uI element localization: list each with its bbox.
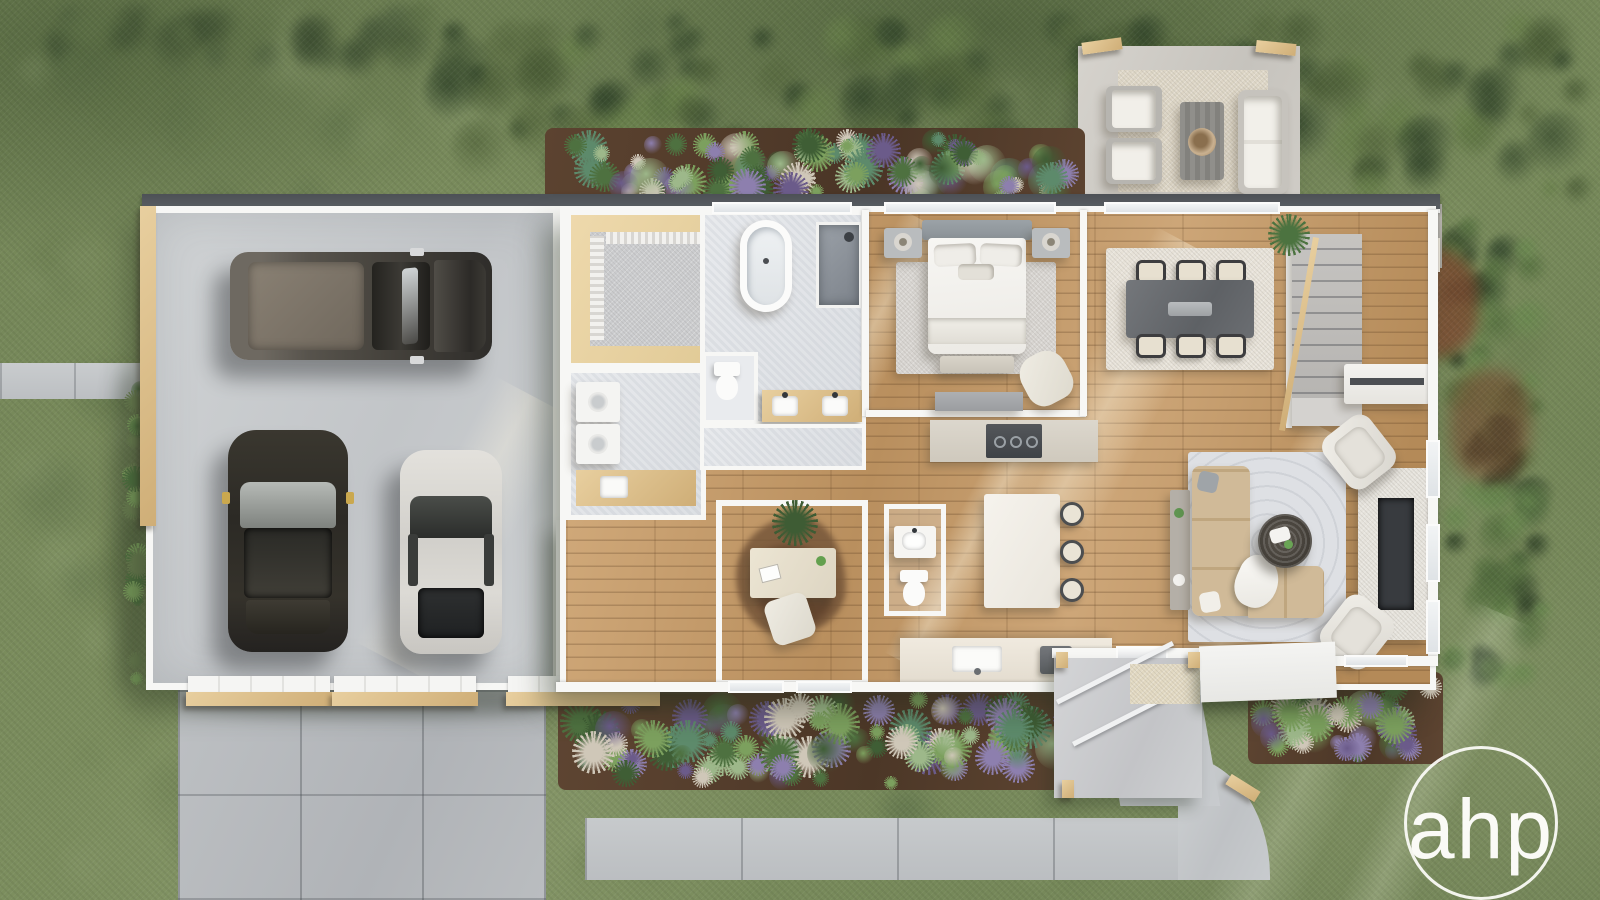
rust-groundcover-2: [1450, 370, 1530, 480]
dining-chair-6: [1216, 334, 1246, 358]
white-car-side-glass-right: [484, 534, 494, 586]
dining-centerpiece: [1168, 302, 1212, 316]
white-car-windshield: [410, 496, 492, 538]
ahp-logo-text: ahp: [1408, 787, 1554, 871]
bed-folded-blanket: [928, 318, 1026, 344]
laundry-sink: [600, 476, 628, 498]
bar-stool-1: [1060, 502, 1084, 526]
laundry-counter: [576, 470, 696, 506]
porch-roof-slab: [1199, 642, 1337, 703]
washer-door: [588, 392, 608, 412]
shower-head: [844, 232, 854, 242]
porch-post-3: [1062, 780, 1074, 798]
closet-carpet: [590, 232, 710, 346]
porch-post-1: [1056, 652, 1068, 668]
bed-bench: [940, 356, 1014, 373]
garage-door-apron-1: [186, 692, 332, 706]
console-decor-plant: [1174, 508, 1184, 518]
vanity-faucet-2: [832, 392, 838, 398]
dark-car-roof-glass: [244, 528, 332, 598]
window-office-front-2: [796, 681, 852, 693]
pickup-truck-windshield-glint: [402, 267, 418, 345]
mud-hall: [700, 424, 866, 470]
wall-bedroom-dining: [1080, 210, 1087, 416]
pickup-truck-mirror-top: [410, 248, 424, 256]
tub-drain: [763, 258, 769, 264]
garage-door-1: [188, 676, 330, 692]
dark-car-mirror-left: [222, 492, 230, 504]
bar-stool-2: [1060, 540, 1084, 564]
pickup-truck-mirror-bottom: [410, 356, 424, 364]
vanity-sink-1: [772, 396, 798, 416]
lamp-left: [894, 233, 912, 251]
window-right-3: [1426, 600, 1440, 654]
ahp-logo: ahp: [1404, 746, 1558, 900]
kitchen-island: [984, 494, 1060, 608]
garage-door-2: [334, 676, 476, 692]
dryer-door: [588, 434, 608, 454]
lamp-right: [1042, 233, 1060, 251]
window-right-1: [1426, 440, 1440, 498]
pickup-truck-bed-cover: [248, 262, 364, 350]
console-decor-tray: [1173, 574, 1185, 586]
white-car-engine-cover: [418, 588, 484, 638]
closet-hanging-clothes-left: [590, 236, 604, 340]
wall-right-exterior: [1428, 210, 1438, 662]
wall-bedroom-kitchen: [866, 410, 1086, 417]
office-plant: [772, 500, 818, 546]
walk-in-shower: [816, 222, 862, 308]
closet-hanging-clothes-top: [606, 232, 706, 244]
range-burner-1: [994, 436, 1006, 448]
patio-lounge-chair-1-cushion: [1112, 90, 1156, 128]
range-burner-2: [1010, 436, 1022, 448]
window-bedroom-rear: [884, 202, 1056, 214]
coffee-table-plant: [1284, 540, 1293, 549]
rear-console-top: [1350, 378, 1424, 385]
powder-toilet-bowl: [903, 580, 925, 606]
dark-car-rear-deck: [246, 600, 330, 634]
garage-left-wood-clad: [140, 206, 156, 526]
desk-plant: [816, 556, 826, 566]
dark-car-mirror-right: [346, 492, 354, 504]
porch-post-2: [1188, 652, 1200, 668]
toilet-master-bowl: [716, 374, 738, 400]
vanity-sink-2: [822, 396, 848, 416]
patio-fire-bowl: [1188, 128, 1216, 156]
porch-mat: [1130, 664, 1200, 704]
patio-lounge-chair-2-cushion: [1112, 142, 1156, 180]
pickup-truck-cab-glass: [372, 262, 430, 350]
aerial-home-render: ahp: [0, 0, 1600, 900]
garage-door-apron-2: [332, 692, 478, 706]
window-right-2: [1426, 524, 1440, 582]
powder-sink: [902, 532, 926, 550]
pickup-truck-hood: [434, 260, 486, 352]
dark-car-windshield: [240, 482, 336, 528]
bed-headboard: [922, 220, 1032, 240]
stair-plant: [1268, 214, 1310, 256]
fireplace-firebox: [1378, 498, 1414, 610]
dining-chair-5: [1176, 334, 1206, 358]
dining-chair-4: [1136, 334, 1166, 358]
driveway: [178, 690, 546, 900]
sofa-pillow-1: [1196, 470, 1220, 494]
window-living-front-2: [1344, 655, 1408, 667]
range-burner-3: [1026, 436, 1038, 448]
tub-basin: [747, 227, 785, 305]
window-bath-rear: [712, 202, 852, 214]
powder-faucet: [912, 528, 917, 533]
bar-stool-3: [1060, 578, 1084, 602]
bedroom-dresser: [935, 392, 1023, 411]
patio-door-dining: [1104, 202, 1280, 214]
sofa-pillow-2: [1198, 590, 1221, 613]
white-car-side-glass-left: [408, 534, 418, 586]
garage-door-apron-3: [506, 692, 660, 706]
patio-sofa-cushions: [1244, 96, 1282, 188]
sidewalk: [585, 818, 1225, 880]
kitchen-faucet: [974, 668, 981, 675]
window-office-front: [728, 681, 784, 693]
bed-accent-pillow: [958, 264, 994, 280]
vanity-faucet-1: [782, 392, 788, 398]
wall-bedroom-bath: [862, 210, 869, 416]
